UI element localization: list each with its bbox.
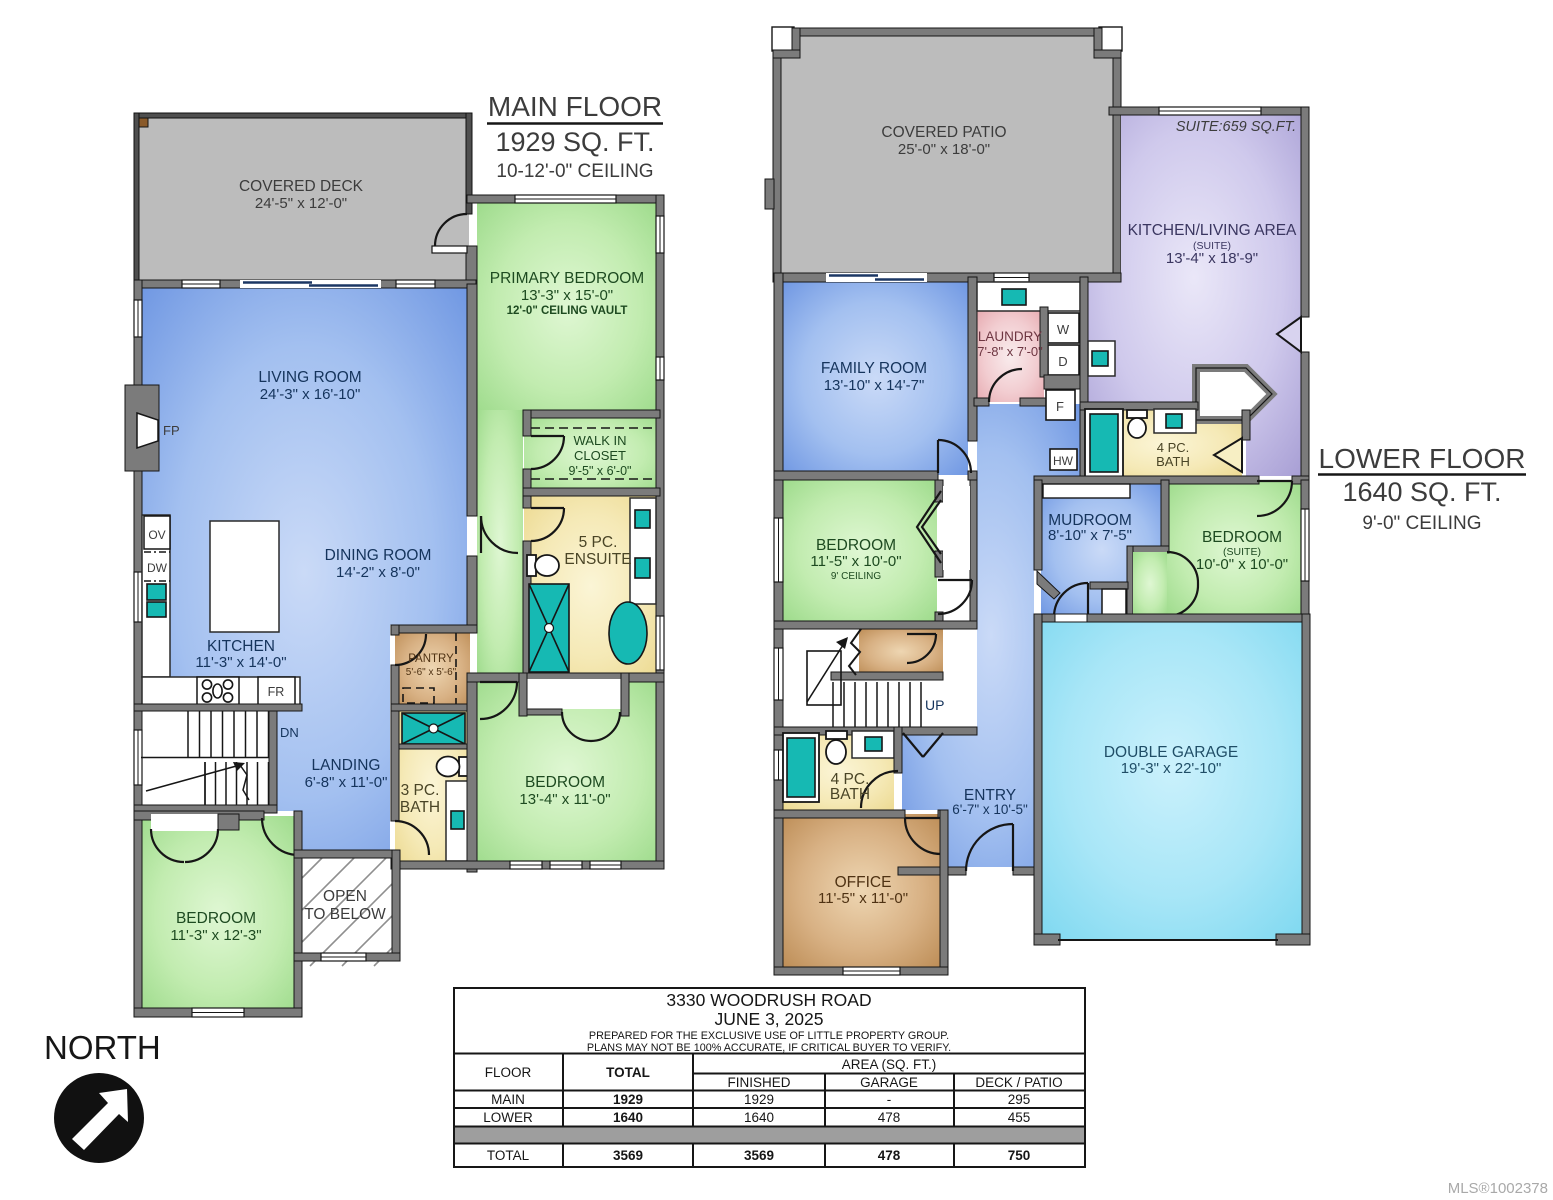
svg-text:DW: DW — [147, 561, 168, 575]
svg-text:PANTRY: PANTRY — [408, 653, 454, 665]
svg-text:1929 SQ. FT.: 1929 SQ. FT. — [495, 127, 654, 157]
svg-text:750: 750 — [1008, 1148, 1031, 1163]
svg-text:LANDING: LANDING — [312, 757, 381, 774]
svg-text:BATH: BATH — [1156, 454, 1190, 469]
svg-text:295: 295 — [1008, 1092, 1031, 1107]
svg-text:D: D — [1058, 354, 1067, 369]
svg-text:OPEN: OPEN — [323, 888, 367, 905]
svg-text:11'-3" x 12'-3": 11'-3" x 12'-3" — [170, 927, 261, 944]
svg-text:3569: 3569 — [613, 1148, 643, 1163]
svg-text:DINING ROOM: DINING ROOM — [325, 547, 432, 564]
svg-text:LOWER: LOWER — [483, 1110, 533, 1125]
svg-text:UP: UP — [925, 697, 944, 713]
svg-text:3569: 3569 — [744, 1148, 774, 1163]
svg-text:BEDROOM: BEDROOM — [1202, 529, 1282, 546]
svg-text:3 PC.: 3 PC. — [401, 782, 440, 799]
svg-text:FAMILY ROOM: FAMILY ROOM — [821, 360, 927, 377]
svg-text:LAUNDRY: LAUNDRY — [978, 329, 1042, 344]
svg-text:ENSUITE: ENSUITE — [564, 551, 631, 568]
svg-text:11'-5" x 11'-0": 11'-5" x 11'-0" — [818, 890, 908, 907]
svg-text:PLANS MAY NOT BE 100% ACCURATE: PLANS MAY NOT BE 100% ACCURATE, IF CRITI… — [587, 1042, 951, 1054]
svg-text:NORTH: NORTH — [44, 1029, 161, 1066]
svg-text:TOTAL: TOTAL — [487, 1148, 530, 1163]
svg-text:5'-6" x 5'-6": 5'-6" x 5'-6" — [406, 667, 457, 678]
svg-text:13'-10" x 14'-7": 13'-10" x 14'-7" — [824, 377, 925, 394]
svg-text:TOTAL: TOTAL — [606, 1065, 650, 1080]
svg-text:DECK / PATIO: DECK / PATIO — [975, 1075, 1062, 1090]
svg-text:19'-3" x 22'-10": 19'-3" x 22'-10" — [1121, 760, 1222, 777]
svg-text:KITCHEN/LIVING AREA: KITCHEN/LIVING AREA — [1128, 222, 1297, 239]
svg-text:F: F — [1056, 399, 1064, 414]
svg-text:WALK IN: WALK IN — [574, 433, 627, 448]
svg-text:10-12'-0" CEILING: 10-12'-0" CEILING — [496, 161, 653, 182]
svg-text:W: W — [1057, 322, 1070, 337]
svg-text:DN: DN — [280, 725, 299, 740]
svg-text:AREA (SQ. FT.): AREA (SQ. FT.) — [842, 1057, 937, 1072]
svg-text:9' CEILING: 9' CEILING — [831, 571, 881, 582]
svg-text:10'-0" x 10'-0": 10'-0" x 10'-0" — [1196, 556, 1288, 573]
svg-text:478: 478 — [878, 1110, 901, 1125]
svg-text:1640: 1640 — [744, 1110, 774, 1125]
svg-text:KITCHEN: KITCHEN — [207, 638, 275, 655]
svg-text:9'-5" x 6'-0": 9'-5" x 6'-0" — [569, 464, 632, 478]
svg-text:1640 SQ. FT.: 1640 SQ. FT. — [1342, 477, 1501, 507]
svg-text:OV: OV — [148, 528, 165, 542]
svg-text:BEDROOM: BEDROOM — [176, 910, 256, 927]
svg-text:3330 WOODRUSH ROAD: 3330 WOODRUSH ROAD — [666, 990, 871, 1010]
svg-text:1929: 1929 — [613, 1092, 643, 1107]
svg-text:5 PC.: 5 PC. — [579, 534, 618, 551]
svg-text:FP: FP — [163, 423, 180, 438]
svg-text:FR: FR — [268, 685, 285, 699]
svg-text:14'-2" x 8'-0": 14'-2" x 8'-0" — [336, 564, 420, 581]
svg-text:478: 478 — [878, 1148, 901, 1163]
svg-text:455: 455 — [1008, 1110, 1031, 1125]
svg-text:COVERED PATIO: COVERED PATIO — [881, 124, 1006, 141]
svg-text:OFFICE: OFFICE — [835, 874, 892, 891]
svg-text:DOUBLE GARAGE: DOUBLE GARAGE — [1104, 744, 1238, 761]
svg-text:12'-0" CEILING VAULT: 12'-0" CEILING VAULT — [507, 305, 628, 317]
svg-text:BEDROOM: BEDROOM — [525, 774, 605, 791]
svg-text:13'-4" x 18'-9": 13'-4" x 18'-9" — [1166, 250, 1258, 267]
svg-text:1929: 1929 — [744, 1092, 774, 1107]
svg-text:FLOOR: FLOOR — [485, 1065, 532, 1080]
svg-text:8'-10" x 7'-5": 8'-10" x 7'-5" — [1048, 527, 1132, 544]
svg-text:13'-4" x 11'-0": 13'-4" x 11'-0" — [519, 791, 610, 808]
svg-text:GARAGE: GARAGE — [860, 1075, 918, 1090]
svg-text:PRIMARY BEDROOM: PRIMARY BEDROOM — [490, 270, 644, 287]
svg-text:13'-3" x 15'-0": 13'-3" x 15'-0" — [521, 287, 613, 304]
svg-text:LIVING ROOM: LIVING ROOM — [258, 369, 361, 386]
svg-text:MLS®1002378: MLS®1002378 — [1448, 1180, 1548, 1197]
svg-text:COVERED DECK: COVERED DECK — [239, 178, 364, 195]
svg-text:BATH: BATH — [400, 799, 440, 816]
svg-text:11'-5" x 10'-0": 11'-5" x 10'-0" — [810, 553, 901, 570]
svg-text:BEDROOM: BEDROOM — [816, 537, 896, 554]
svg-text:24'-3" x 16'-10": 24'-3" x 16'-10" — [260, 386, 361, 403]
svg-text:-: - — [887, 1092, 892, 1107]
svg-text:HW: HW — [1053, 454, 1074, 468]
svg-text:BATH: BATH — [830, 786, 870, 803]
svg-text:FINISHED: FINISHED — [727, 1075, 790, 1090]
svg-text:1640: 1640 — [613, 1110, 643, 1125]
svg-text:6'-8" x 11'-0": 6'-8" x 11'-0" — [305, 774, 388, 791]
svg-text:TO BELOW: TO BELOW — [304, 906, 386, 923]
svg-text:6'-7" x 10'-5": 6'-7" x 10'-5" — [952, 802, 1028, 817]
svg-text:MAIN FLOOR: MAIN FLOOR — [488, 91, 662, 122]
svg-text:11'-3" x 14'-0": 11'-3" x 14'-0" — [195, 654, 286, 671]
svg-text:9'-0" CEILING: 9'-0" CEILING — [1362, 513, 1481, 534]
svg-text:CLOSET: CLOSET — [574, 448, 626, 463]
svg-text:SUITE:659 SQ.FT.: SUITE:659 SQ.FT. — [1176, 119, 1296, 135]
svg-text:MAIN: MAIN — [491, 1092, 525, 1107]
svg-text:25'-0" x 18'-0": 25'-0" x 18'-0" — [898, 141, 990, 158]
svg-text:7'-8" x 7'-0": 7'-8" x 7'-0" — [977, 344, 1043, 359]
svg-text:PREPARED FOR THE EXCLUSIVE USE: PREPARED FOR THE EXCLUSIVE USE OF LITTLE… — [589, 1030, 949, 1042]
svg-text:4 PC.: 4 PC. — [1157, 440, 1190, 455]
svg-text:24'-5" x 12'-0": 24'-5" x 12'-0" — [255, 195, 347, 212]
svg-text:JUNE 3, 2025: JUNE 3, 2025 — [715, 1009, 824, 1029]
svg-text:LOWER FLOOR: LOWER FLOOR — [1319, 443, 1526, 474]
